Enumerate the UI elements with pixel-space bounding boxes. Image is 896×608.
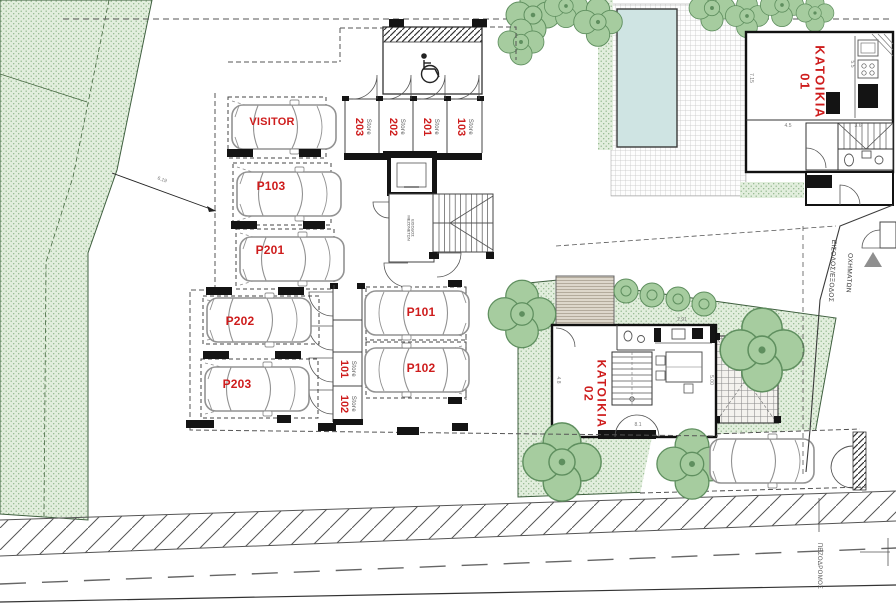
- street-car: [710, 434, 814, 488]
- store-label-102: Store102: [338, 395, 356, 413]
- road-centerline: [0, 548, 896, 584]
- swimming-pool: [617, 9, 677, 147]
- dim-h1-room: 4.5: [785, 123, 792, 129]
- road-edge: [0, 585, 896, 602]
- house-02-label: ΚΑΤΟΙΚΙΑ 02: [581, 360, 608, 429]
- elevator-icon: [389, 156, 434, 194]
- green-landscape-west: [0, 0, 152, 520]
- plot-house-01: [498, 0, 896, 248]
- dim-h2-right: 5.00: [708, 375, 714, 385]
- dim-h1-stair: 3.6: [855, 123, 862, 129]
- store-label-201: Store201: [421, 118, 439, 136]
- toilet-icon: [845, 154, 854, 166]
- stairs-icon: [612, 352, 652, 405]
- store-label-101: Store101: [338, 360, 356, 378]
- stall-label-p102: P102: [407, 361, 436, 375]
- dim-h1-kitchen: 5.5: [849, 61, 855, 68]
- stall-label-visitor: VISITOR: [249, 116, 294, 128]
- sidewalk-hatch: [0, 491, 896, 556]
- stove-icon: [858, 60, 878, 78]
- stairs-icon: [838, 123, 893, 149]
- wc-room: [838, 149, 893, 170]
- direction-arrow-icon: [864, 252, 882, 267]
- door-arc: [309, 292, 333, 414]
- dim-h2-kitchen: 2.91: [677, 317, 687, 323]
- sink-icon: [672, 329, 685, 339]
- stove-icon: [692, 328, 703, 339]
- plan-drawing: [0, 0, 896, 608]
- stairs-icon: [433, 194, 493, 252]
- dim-h1-depth: 7.15: [748, 73, 754, 83]
- dim-h2-left: 4.8: [555, 377, 561, 384]
- stall-label-p101: P101: [407, 305, 436, 319]
- core-entrance-label: ΕΙΣΟΔΟΣ ΜΕΖΟΝΕΤΩΝ: [406, 215, 415, 240]
- architectural-site-plan: VISITOR P103 P201 P202 P203 P101 P102 St…: [0, 0, 896, 608]
- dim-h2-bottom: 8.1: [635, 422, 642, 428]
- store-column-middle: [309, 283, 365, 425]
- fridge-icon: [858, 84, 878, 108]
- door-arc: [862, 230, 880, 248]
- stall-label-p103: P103: [257, 179, 286, 193]
- basin-icon: [875, 156, 883, 164]
- sidewalk-label: ΠΕΖΟΔΡΟΜΟΣ: [816, 543, 822, 590]
- disabled-parking-stall: [383, 19, 487, 94]
- stall-label-p201: P201: [256, 243, 285, 257]
- house-01-label: ΚΑΤΟΙΚΙΑ 01: [797, 45, 826, 119]
- store-label-202: Store202: [387, 118, 405, 136]
- stall-label-p203: P203: [223, 377, 252, 391]
- toilet-icon: [624, 331, 632, 341]
- building-core: [373, 151, 494, 287]
- stall-label-p202: P202: [226, 314, 255, 328]
- store-label-103: Store103: [455, 118, 473, 136]
- store-label-203: Store203: [353, 118, 371, 136]
